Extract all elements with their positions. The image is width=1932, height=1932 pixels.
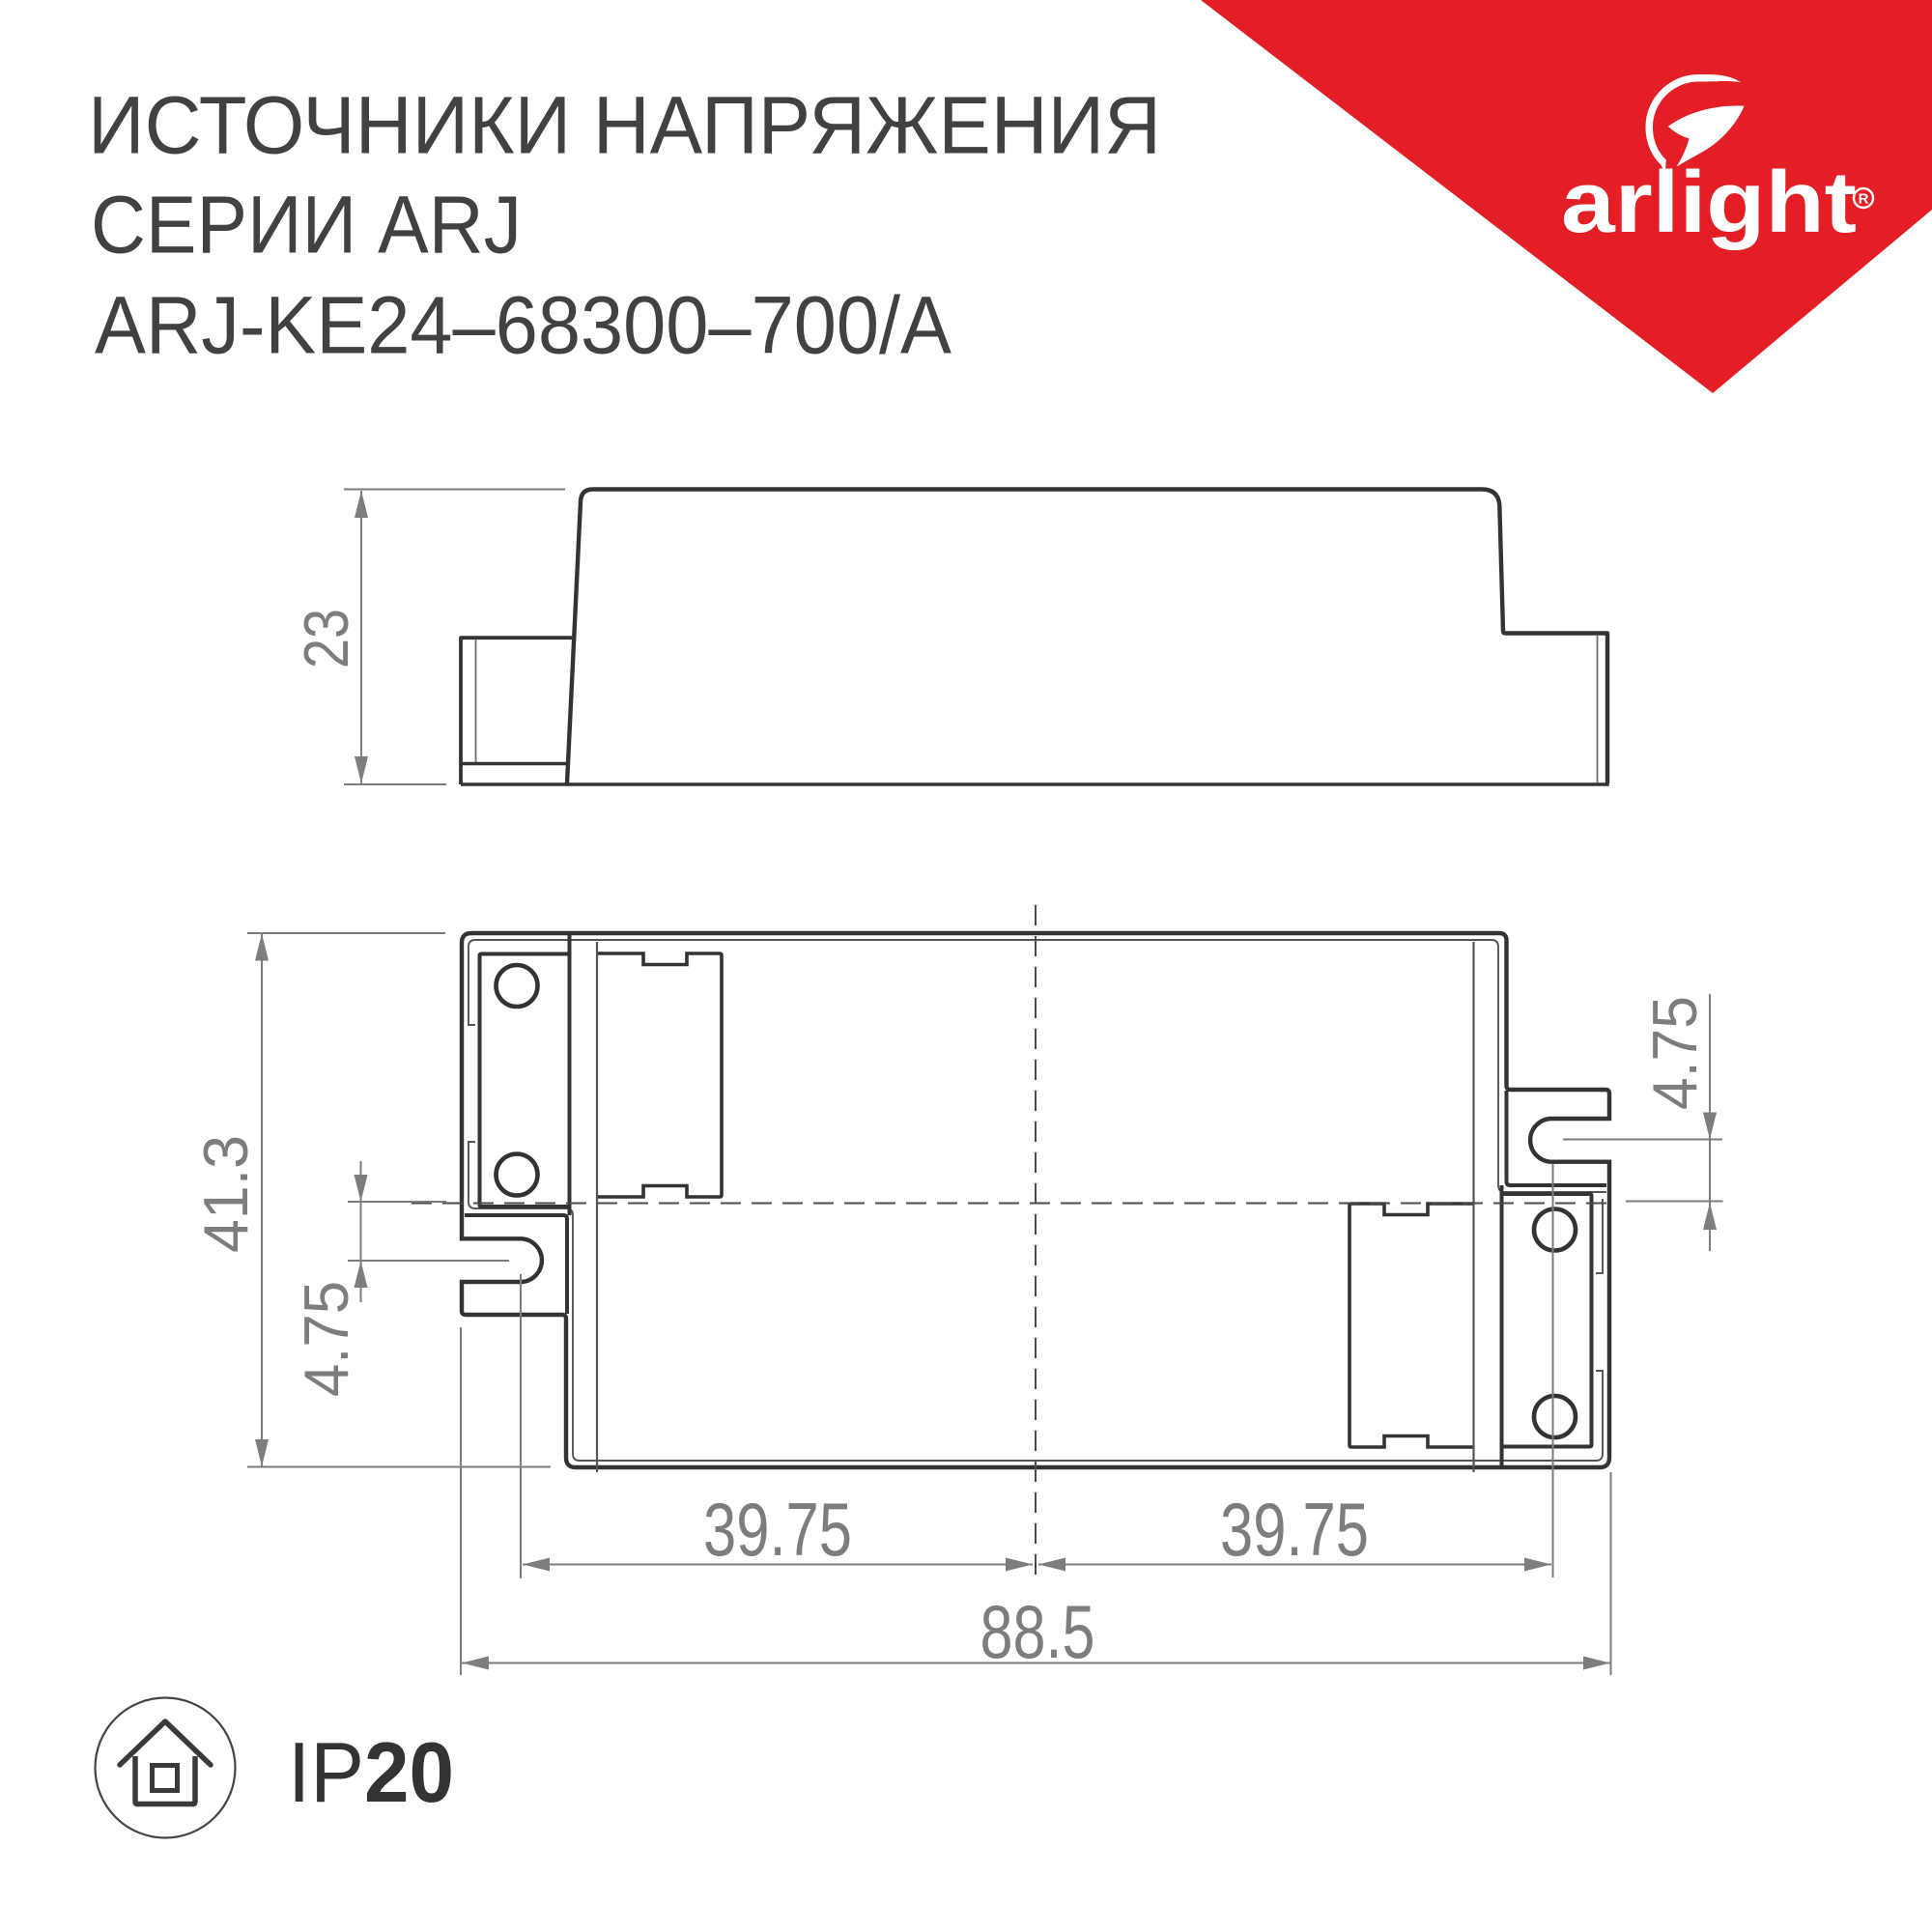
svg-text:R: R	[1859, 191, 1869, 208]
svg-text:ИСТОЧНИКИ НАПРЯЖЕНИЯ: ИСТОЧНИКИ НАПРЯЖЕНИЯ	[88, 80, 1161, 171]
svg-text:IP20: IP20	[288, 1724, 454, 1820]
svg-text:СЕРИИ ARJ: СЕРИИ ARJ	[91, 179, 522, 270]
svg-text:ARJ-KE24–68300–700/A: ARJ-KE24–68300–700/A	[95, 280, 952, 371]
svg-text:41.3: 41.3	[190, 1135, 261, 1253]
svg-text:arlight: arlight	[1561, 155, 1857, 251]
svg-text:39.75: 39.75	[703, 1487, 852, 1572]
svg-text:4.75: 4.75	[1639, 996, 1710, 1110]
svg-text:4.75: 4.75	[291, 1281, 361, 1397]
svg-text:39.75: 39.75	[1220, 1487, 1369, 1572]
svg-text:88.5: 88.5	[980, 1589, 1095, 1674]
svg-text:23: 23	[291, 609, 361, 668]
